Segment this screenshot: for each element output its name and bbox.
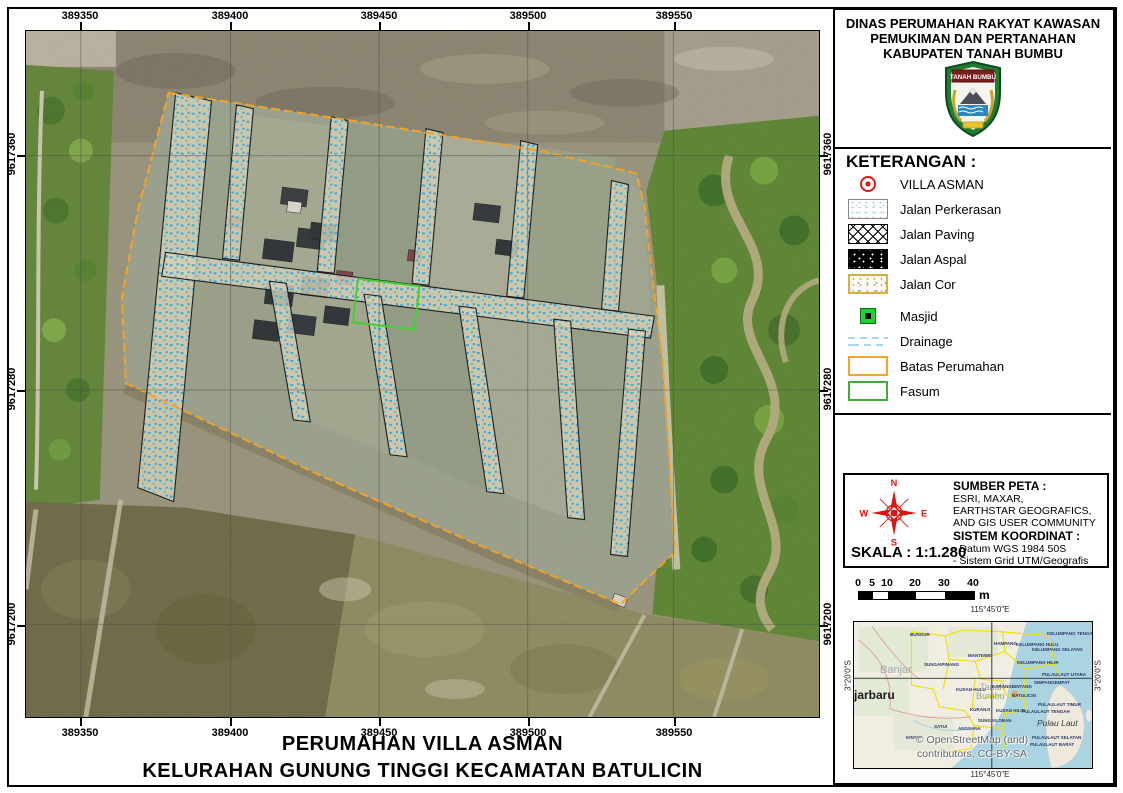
inset-bottom-coordinate: 115°45'0"E (950, 770, 1030, 779)
x-tick-mark (528, 22, 530, 30)
compass-n-label: N (891, 478, 898, 488)
batas-symbol (848, 356, 888, 376)
scalebar-unit: m (979, 588, 990, 602)
panel-divider-header (835, 147, 1111, 149)
source-line-3: AND GIS USER COMMUNITY (953, 517, 1111, 529)
koordinat-title: SISTEM KOORDINAT : (953, 529, 1111, 543)
map-title-line1: PERUMAHAN VILLA ASMAN (25, 733, 820, 756)
scalebar-number: 40 (963, 577, 983, 589)
legend-item-label: Drainage (900, 334, 953, 349)
x-tick-mark (674, 22, 676, 30)
scalebar-segment (916, 592, 945, 599)
legend-item-label: Jalan Cor (900, 277, 956, 292)
compass-w-label: W (860, 508, 869, 518)
x-tick-mark (230, 22, 232, 30)
inset-basemap (854, 622, 1092, 768)
scalebar-segment (873, 592, 888, 599)
paving-symbol (848, 224, 888, 244)
map-title-line2: KELURAHAN GUNUNG TINGGI KECAMATAN BATULI… (25, 760, 820, 783)
x-tick-mark (80, 718, 82, 726)
legend: VILLA ASMANJalan PerkerasanJalan PavingJ… (848, 172, 1103, 404)
legend-item: Jalan Paving (848, 222, 1103, 246)
source-line-1: ESRI, MAXAR, (953, 493, 1111, 505)
y-tick-mark (17, 155, 25, 157)
x-tick-mark (379, 718, 381, 726)
aerial-imagery (26, 31, 819, 717)
y-tick-mark (820, 390, 828, 392)
scalebar-segment (888, 592, 916, 599)
map-canvas (25, 30, 820, 718)
legend-item-label: VILLA ASMAN (900, 177, 984, 192)
agency-name-line1: DINAS PERUMAHAN RAKYAT KAWASAN (837, 16, 1109, 31)
source-title: SUMBER PETA : (953, 479, 1111, 493)
inset-right-coordinate: 3°20'0"S (1094, 636, 1103, 716)
imagery-texture (26, 31, 819, 717)
panel-divider-legend (835, 413, 1111, 415)
legend-item-label: Jalan Paving (900, 227, 974, 242)
legend-item: Jalan Perkerasan (848, 197, 1103, 221)
cor-symbol (848, 274, 888, 294)
tanah-bumbu-crest-logo: TANAH BUMBU (941, 60, 1005, 140)
fasum-symbol (848, 381, 888, 401)
y-tick-mark (820, 625, 828, 627)
map-layout-sheet: { "map": { "xticks": [ {"label": "389350… (0, 0, 1123, 793)
x-tick-mark (379, 22, 381, 30)
drainage-symbol (848, 335, 888, 347)
scalebar-segment (859, 592, 873, 599)
source-line-2: EARTHSTAR GEOGRAFICS, (953, 505, 1111, 517)
legend-item: Drainage (848, 329, 1103, 353)
compass-rose-icon: N S W E (851, 477, 937, 549)
legend-item: Fasum (848, 379, 1103, 403)
agency-name-line2: PEMUKIMAN DAN PERTANAHAN (837, 31, 1109, 46)
x-tick-mark (80, 22, 82, 30)
legend-item-label: Jalan Aspal (900, 252, 967, 267)
inset-left-coordinate: 3°20'0"S (844, 636, 853, 716)
legend-item: Jalan Cor (848, 272, 1103, 296)
y-tick-mark (17, 625, 25, 627)
aspal-symbol (848, 249, 888, 269)
x-tick-mark (230, 718, 232, 726)
masjid-symbol (860, 308, 876, 324)
point-symbol (848, 174, 888, 194)
perkerasan-symbol (848, 199, 888, 219)
legend-title: KETERANGAN : (846, 152, 976, 172)
y-tick-mark (820, 155, 828, 157)
logo-banner-text: TANAH BUMBU (950, 74, 996, 81)
agency-name-line3: KABUPATEN TANAH BUMBU (837, 46, 1109, 61)
koordinat-line-1: - Datum WGS 1984 50S (953, 543, 1111, 555)
y-tick-mark (17, 390, 25, 392)
scale-text: SKALA : 1:1.280 (851, 544, 966, 561)
legend-item: Jalan Aspal (848, 247, 1103, 271)
batulicin-urban-area (1011, 691, 1018, 698)
scalebar-segment (945, 592, 974, 599)
koordinat-line-2: - Sistem Grid UTM/Geografis (953, 555, 1111, 567)
scalebar-number: 20 (905, 577, 925, 589)
legend-item-label: Fasum (900, 384, 940, 399)
legend-item: Masjid (848, 304, 1103, 328)
scalebar-bar (858, 591, 975, 600)
legend-item-label: Jalan Perkerasan (900, 202, 1001, 217)
inset-overview-map: BanjarjarbaruTanahBumbuPulau LautBUNGURH… (853, 621, 1093, 769)
legend-item: Batas Perumahan (848, 354, 1103, 378)
scalebar-number: 30 (934, 577, 954, 589)
legend-item-label: Masjid (900, 309, 938, 324)
scalebar-number: 10 (877, 577, 897, 589)
x-tick-mark (674, 718, 676, 726)
legend-item: VILLA ASMAN (848, 172, 1103, 196)
inset-top-coordinate: 115°45'0"E (950, 605, 1030, 614)
x-tick-mark (528, 718, 530, 726)
compass-e-label: E (921, 508, 927, 518)
legend-item-label: Batas Perumahan (900, 359, 1004, 374)
